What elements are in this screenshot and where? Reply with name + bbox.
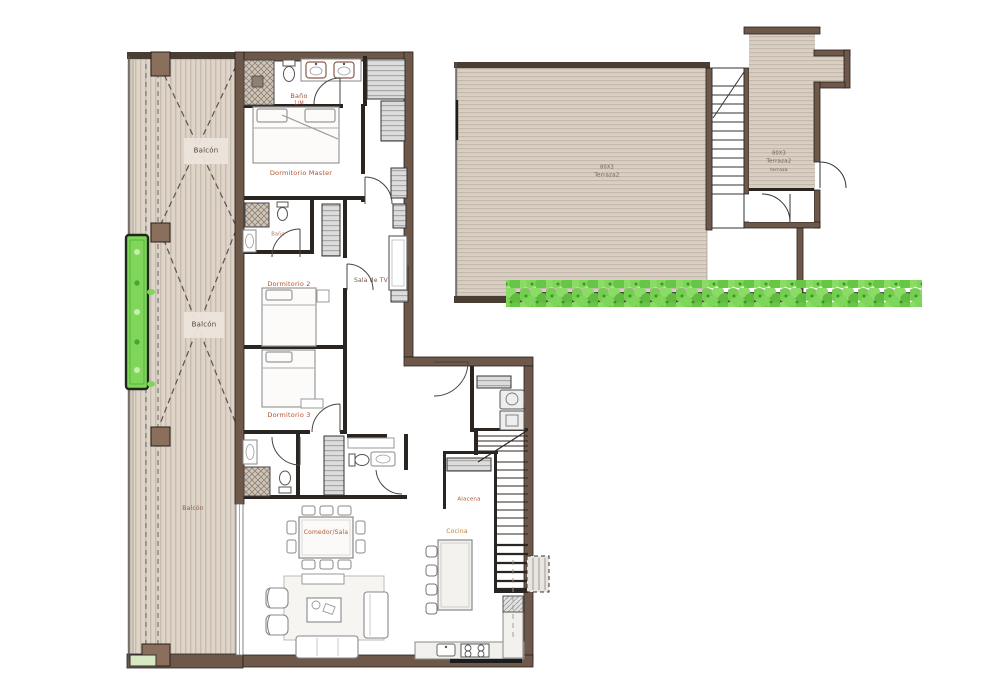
toilet [279,471,291,493]
label-terrace-right-name: Terraza2 [767,159,792,165]
nightstand [317,290,329,302]
utility-room [434,362,524,430]
door-swing [376,470,402,494]
label-master-bedroom: Dormitorio Master [270,170,332,177]
kitchen-sink [437,644,455,656]
door-swing [365,177,392,204]
closet [324,436,344,495]
label-terrace-right-code: 80X3 [772,152,786,157]
threshold [450,659,522,663]
label-terrace-left-name: Terraza2 [595,173,620,179]
pantry [447,458,491,471]
coffee-table [307,598,341,622]
living-area [266,574,388,658]
shelf [477,376,511,388]
toilet [349,454,369,466]
closet [367,59,405,99]
label-balcony-bottom: Balcón [182,506,203,512]
dining-table [299,517,353,558]
dryer [500,411,524,430]
stove [461,644,489,657]
floor-plan: Balcón Balcón Balcón Baño 1/M Dormitorio… [0,0,1000,700]
kitchen [415,540,524,663]
shower [244,467,270,496]
label-dining-living: Comedor/Sala [304,530,349,536]
vanity-counter [348,438,394,448]
sink [243,230,256,252]
bathroom-2 [243,202,300,257]
double-sink-vanity [301,59,361,81]
bedroom-3 [262,350,340,432]
planter-small [130,655,156,666]
console [302,574,344,584]
label-tv-room: Sala de TV [354,278,388,284]
label-bath2: Baño [271,233,285,238]
toilet [277,202,288,221]
terrace-right-wing [744,27,850,228]
terrace [454,27,922,307]
bed-master [253,107,339,163]
sink [243,440,257,464]
closet [393,204,406,228]
closet [391,168,407,198]
tv-console [389,236,407,290]
hedge [506,280,922,307]
closet [381,101,405,141]
door-swing [434,362,468,396]
label-pantry: Alacena [457,497,480,503]
sink [371,452,395,466]
sofa-bottom [296,636,358,658]
label-master-bath-sub: 1/M [294,102,304,107]
closet [322,204,340,256]
bed-2 [262,288,316,346]
shaft-dashed-box [527,556,549,592]
label-terrace-right-sub: terraza [770,169,787,174]
door-swing [272,437,300,465]
bar-stools [426,546,437,614]
bed-3 [262,350,315,407]
balcony-strip [126,52,243,668]
shelf [447,458,491,471]
label-master-bath: Baño [290,93,307,100]
label-bedroom3: Dormitorio 3 [267,412,310,419]
floor-plan-drawing [0,0,1000,700]
sofa-right [364,592,388,638]
bench [301,399,323,408]
living-room-window [236,504,243,655]
terrace-stairs [706,68,749,230]
door-swing [314,78,340,104]
label-kitchen: Cocina [446,529,468,535]
label-balcony-top: Balcón [194,148,219,155]
master-bedroom [253,107,392,204]
washer [500,390,524,409]
door-swing [820,162,846,188]
kitchen-island [438,540,472,610]
toilet [283,60,295,82]
bathroom-3 [243,437,300,496]
powder-room [348,438,402,494]
label-bedroom2: Dormitorio 2 [267,281,310,288]
label-terrace-left-code: 80X3 [600,166,614,171]
label-balcony-mid: Balcón [192,322,217,329]
shower [245,203,269,227]
dining-area [287,506,365,569]
terrace-vestibule [749,190,814,222]
